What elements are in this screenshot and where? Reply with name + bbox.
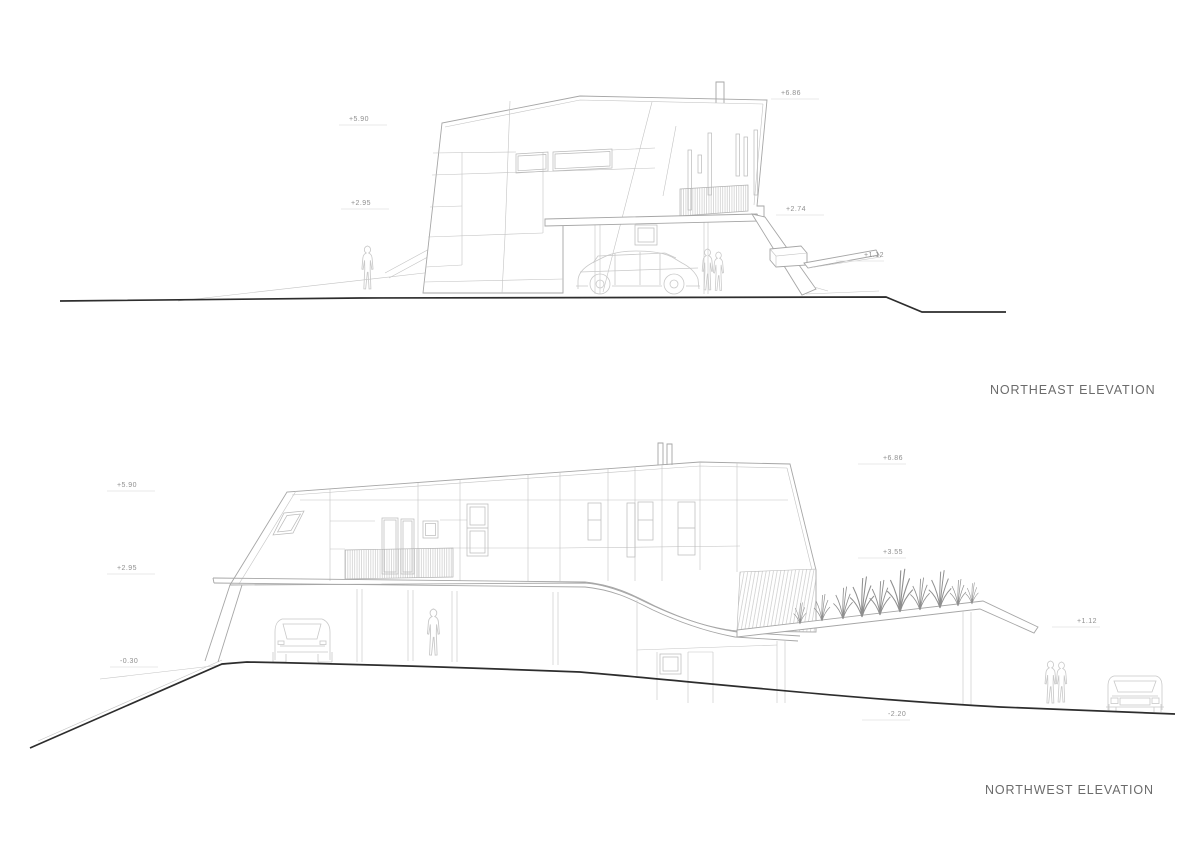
ne-site-lines bbox=[178, 247, 437, 301]
ne-person-pair-2 bbox=[714, 252, 724, 290]
ne-marker-112: +1.12 bbox=[864, 252, 884, 259]
nw-person-carport bbox=[427, 609, 439, 655]
architectural-drawing-sheet: +5.90 +2.95 +6.86 +2.74 +1.12 NORTHEAST … bbox=[0, 0, 1191, 842]
nw-marker-minus220: -2.20 bbox=[888, 711, 906, 718]
nw-chimneys bbox=[658, 443, 672, 465]
ne-title: NORTHEAST ELEVATION bbox=[990, 383, 1156, 397]
nw-ground-line bbox=[30, 662, 1175, 748]
nw-title: NORTHWEST ELEVATION bbox=[985, 783, 1154, 797]
nw-marker-295: +2.95 bbox=[117, 565, 137, 572]
nw-marker-355: +3.55 bbox=[883, 549, 903, 556]
nw-marker-686: +6.86 bbox=[883, 455, 903, 462]
nw-marker-590: +5.90 bbox=[117, 482, 137, 489]
nw-car-rear bbox=[273, 619, 332, 662]
nw-marker-minus030: -0.30 bbox=[120, 658, 138, 665]
nw-site-lines bbox=[38, 660, 247, 741]
nw-car-front bbox=[1106, 676, 1164, 712]
ne-ground-line bbox=[60, 297, 1006, 312]
nw-balcony-railing bbox=[345, 548, 453, 579]
nw-person-pair-2 bbox=[1056, 662, 1066, 702]
nw-lower-left bbox=[205, 585, 558, 665]
ne-car-side bbox=[576, 251, 700, 294]
elevation-drawings-canvas: +5.90 +2.95 +6.86 +2.74 +1.12 NORTHEAST … bbox=[0, 0, 1191, 842]
ne-marker-274: +2.74 bbox=[786, 206, 806, 213]
northeast-elevation-drawing: +5.90 +2.95 +6.86 +2.74 +1.12 NORTHEAST … bbox=[60, 82, 1156, 397]
ne-marker-295: +2.95 bbox=[351, 200, 371, 207]
nw-building-silhouette bbox=[230, 462, 816, 632]
northwest-elevation-drawing: +5.90 +2.95 -0.30 +6.86 +3.55 +1.12 -2.2… bbox=[30, 443, 1175, 797]
nw-marker-112: +1.12 bbox=[1077, 618, 1097, 625]
ne-marker-590: +5.90 bbox=[349, 116, 369, 123]
nw-person-pair-1 bbox=[1045, 661, 1056, 703]
ne-balcony-railing bbox=[680, 185, 748, 216]
ne-person-left bbox=[362, 246, 373, 289]
ne-marker-686: +6.86 bbox=[781, 90, 801, 97]
